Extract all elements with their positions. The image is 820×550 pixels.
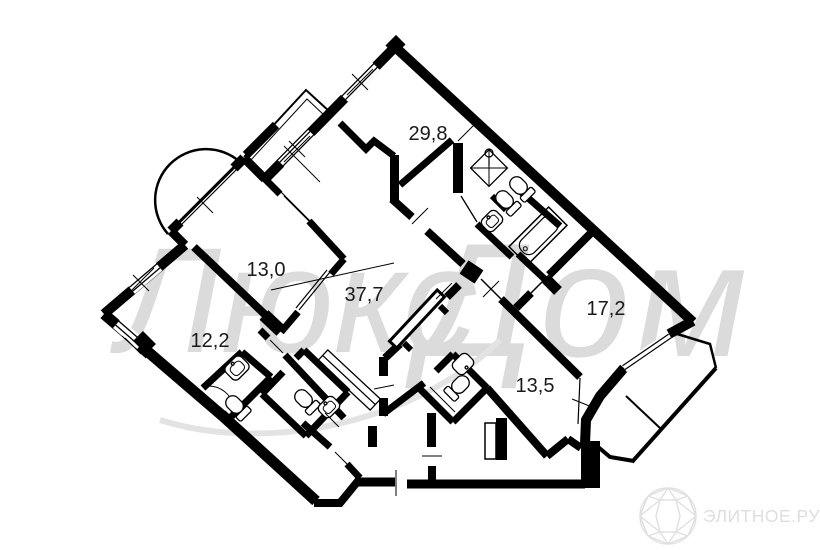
svg-text:37,7: 37,7 (345, 284, 384, 306)
svg-text:17,2: 17,2 (587, 298, 626, 320)
svg-text:29,8: 29,8 (409, 123, 448, 145)
svg-text:13,0: 13,0 (247, 259, 286, 281)
svg-text:ЭЛИТНОЕ.РУ: ЭЛИТНОЕ.РУ (703, 506, 820, 526)
svg-text:12,2: 12,2 (191, 330, 230, 352)
svg-text:13,5: 13,5 (516, 375, 555, 397)
